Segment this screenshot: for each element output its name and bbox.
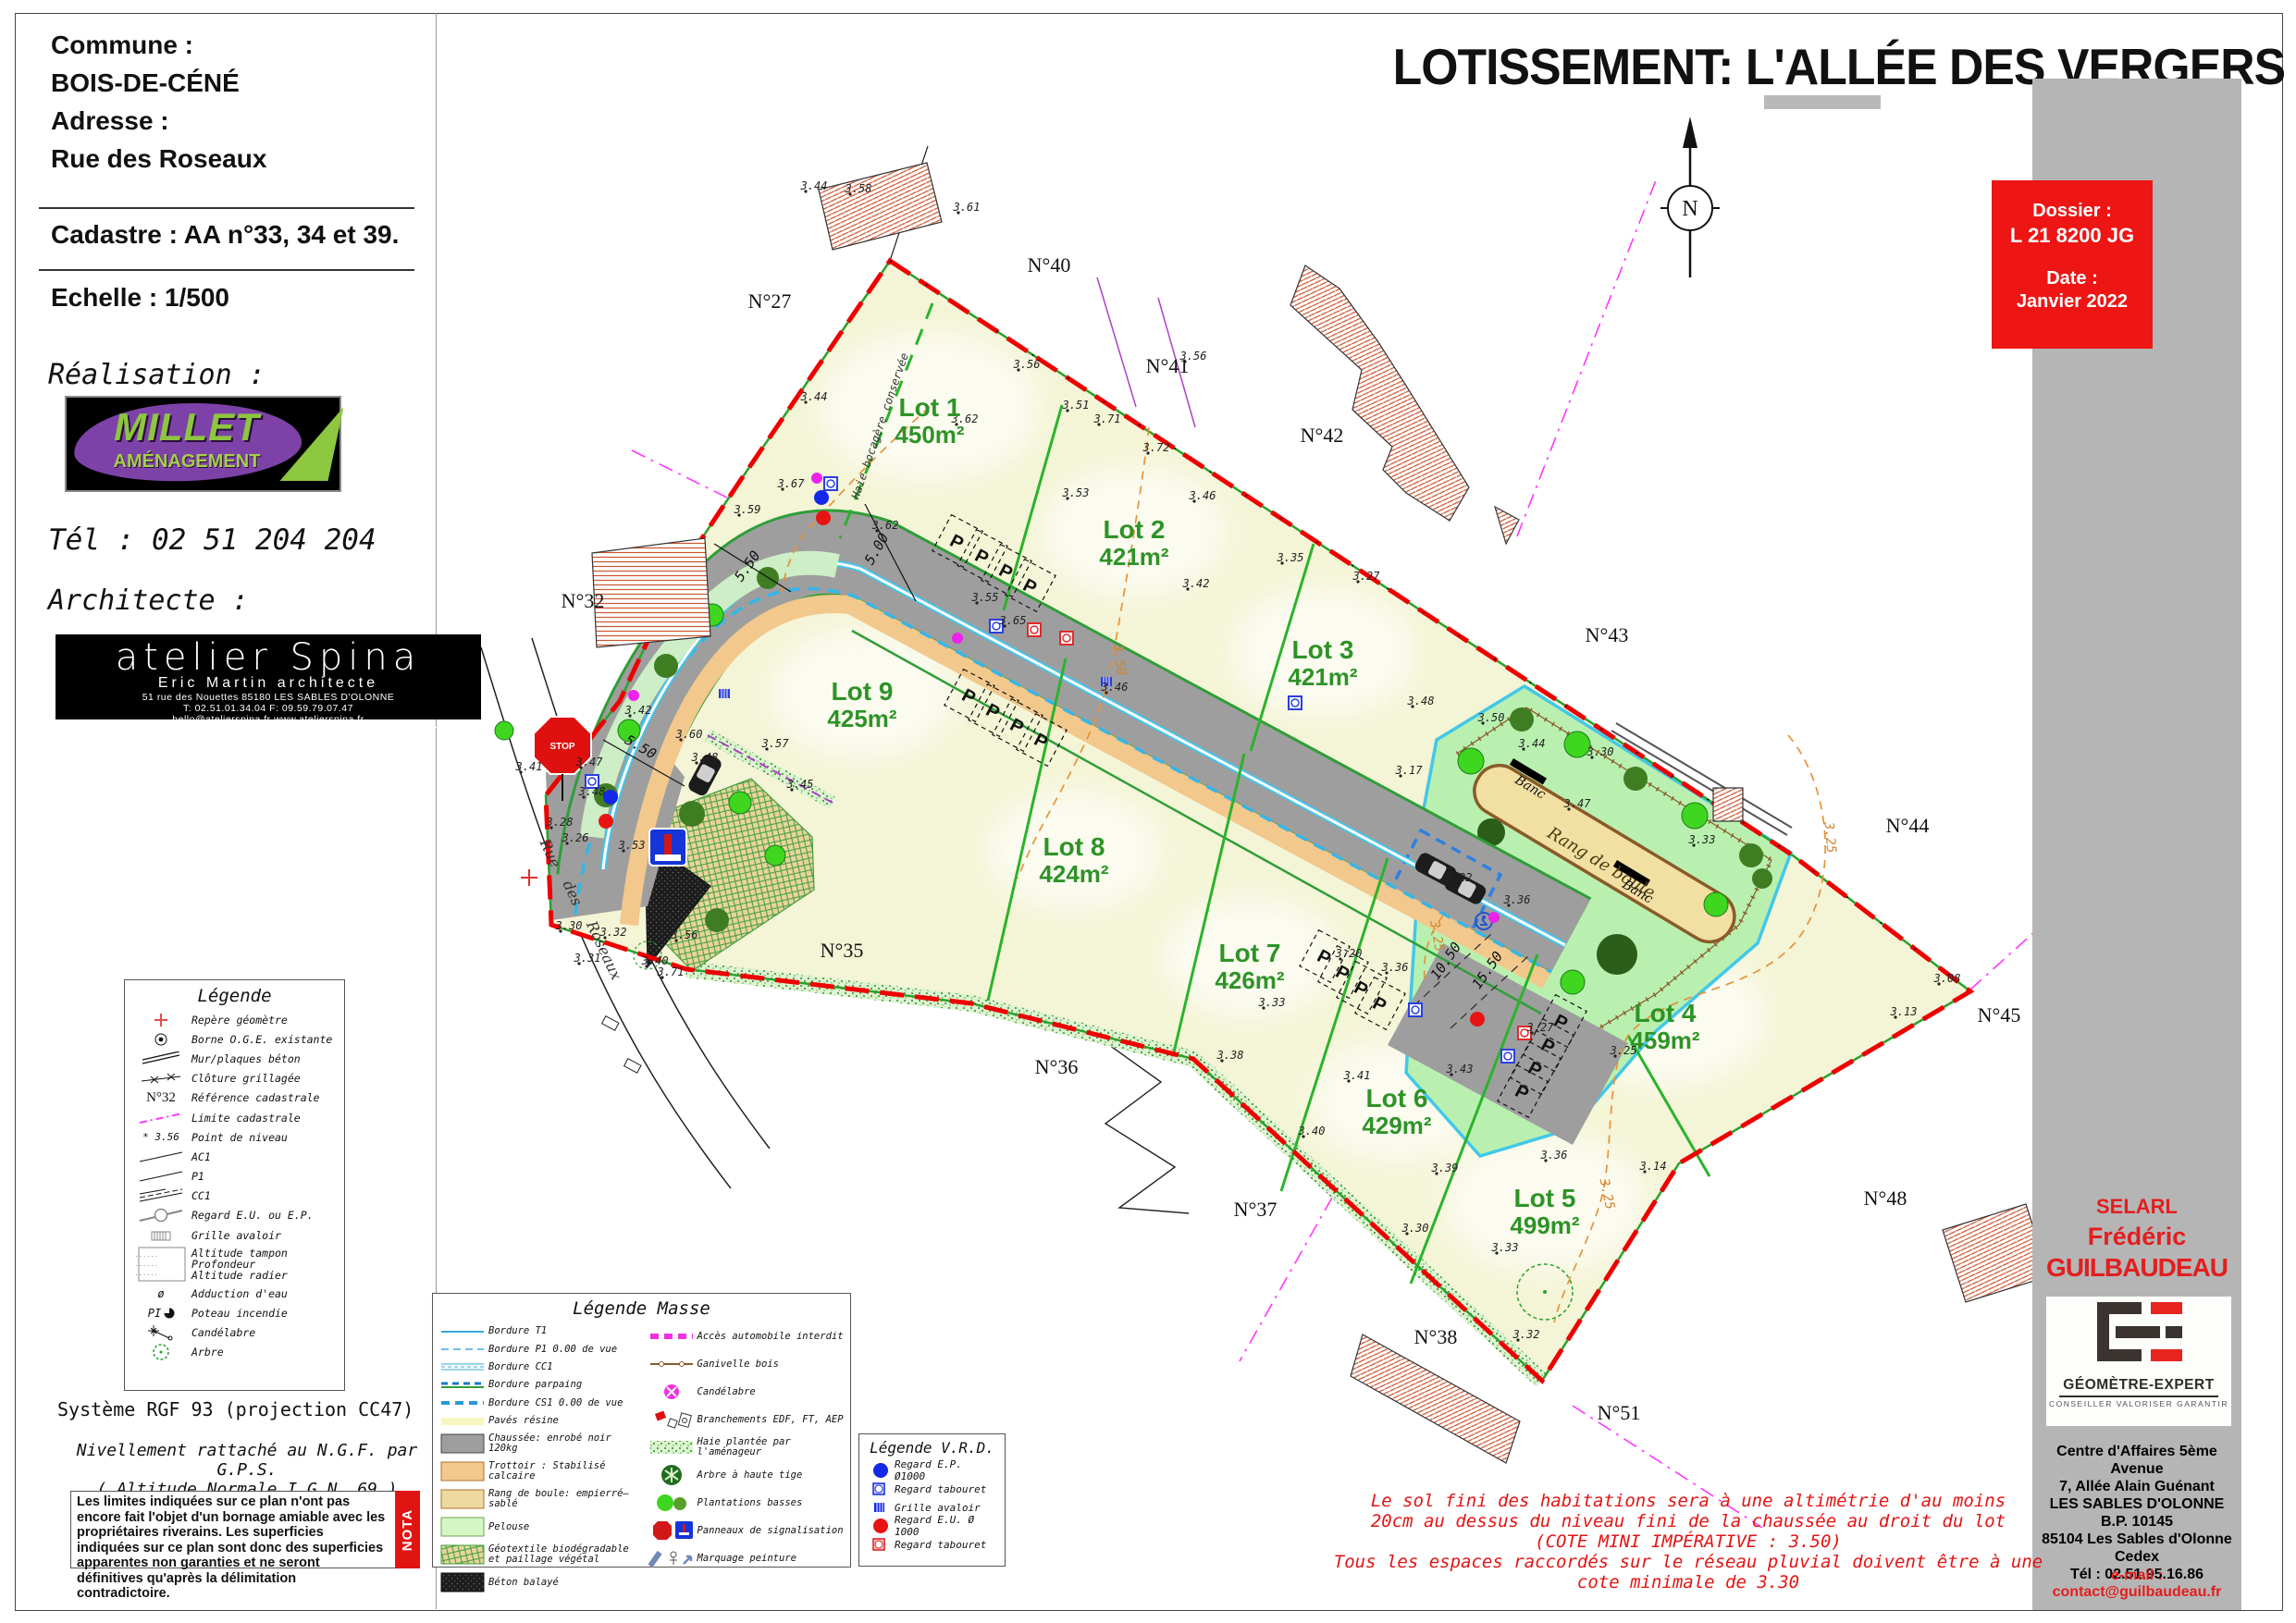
bordure-parpaing-icon — [437, 1381, 488, 1390]
candelabre-masse-icon — [646, 1382, 697, 1402]
arbre-tige-icon — [646, 1463, 697, 1487]
regard-icon — [130, 1207, 191, 1223]
millet-logo-text: MILLET — [67, 405, 307, 449]
altimetry-notes: Le sol fini des habitations sera à une a… — [1332, 1491, 2044, 1592]
geotextile-icon — [437, 1543, 488, 1566]
legend-vrd-box: Légende V.R.D. Regard E.P. Ø1000 Regard … — [858, 1433, 1006, 1567]
spina-email: hello@atelierspina.fr www.atelierspina.f… — [56, 714, 481, 725]
bordure-cs1-icon — [437, 1399, 488, 1407]
marquage-icon — [646, 1547, 697, 1569]
haie-plantee-icon — [646, 1439, 697, 1456]
ac1-icon — [130, 1150, 191, 1163]
millet-logo: MILLET AMÉNAGEMENT — [65, 396, 341, 492]
commune-label: Commune : — [51, 26, 421, 64]
cadastral-limit-icon — [130, 1111, 191, 1125]
legend-vrd-title: Légende V.R.D. — [859, 1439, 1005, 1457]
tpr-icon: T:......P:......R:...... — [130, 1246, 191, 1283]
nota-tag: NOTA — [396, 1491, 420, 1568]
adresse-value: Rue des Roseaux — [51, 140, 421, 178]
ge-logo-subtitle: CONSEILLER VALORISER GARANTIR — [2046, 1399, 2231, 1408]
bordure-t1-icon — [437, 1328, 488, 1335]
tabouret-bleu-icon — [867, 1482, 895, 1496]
tree-icon — [130, 1343, 191, 1361]
nota-box: Les limites indiquées sur ce plan n'ont … — [70, 1491, 396, 1568]
bordure-p1-icon — [437, 1346, 488, 1353]
bordure-cc1-icon — [437, 1362, 488, 1371]
spina-address: 51 rue des Nouettes 85180 LES SABLES D'O… — [56, 692, 481, 703]
realisation-label: Réalisation : — [48, 359, 265, 391]
dossier-number: L 21 8200 JG — [1992, 224, 2153, 248]
ge-logo-title: GÉOMÈTRE-EXPERT — [2059, 1377, 2218, 1397]
echelle: Echelle : 1/500 — [51, 283, 229, 313]
panneaux-icon — [646, 1518, 697, 1543]
dossier-label: Dossier : — [1992, 201, 2153, 222]
selarl-block: SELARL Frédéric GUILBAUDEAU — [2032, 1195, 2241, 1283]
legend-masse-right: Accès automobile interdit Ganivelle bois… — [642, 1322, 851, 1596]
borne-icon — [130, 1032, 191, 1047]
regard-eu-icon — [867, 1518, 895, 1534]
svg-text:T:......: T:...... — [135, 1251, 158, 1259]
dossier-box: Dossier : L 21 8200 JG Date : Janvier 20… — [1992, 180, 2153, 349]
legend-masse-left: Bordure T1 Bordure P1 0.00 de vue Bordur… — [433, 1322, 642, 1596]
fence-icon — [130, 1071, 191, 1086]
rang-boule-icon — [437, 1488, 488, 1510]
geometre-expert-logo: GÉOMÈTRE-EXPERT CONSEILLER VALORISER GAR… — [2046, 1297, 2231, 1426]
cadastre: Cadastre : AA n°33, 34 et 39. — [51, 220, 399, 250]
pelouse-icon — [437, 1516, 488, 1538]
svg-text:P:......: P:...... — [135, 1260, 158, 1268]
realisation-tel: Tél : 02 51 204 204 — [48, 523, 376, 557]
sidebar-address: Centre d'Affaires 5ème Avenue7, Allée Al… — [2032, 1443, 2241, 1583]
divider — [39, 207, 414, 209]
millet-logo-subtext: AMÉNAGEMENT — [67, 451, 307, 473]
tabouret-rouge-icon — [867, 1537, 895, 1552]
geometer-mark-icon — [130, 1013, 191, 1027]
streetlight-icon — [130, 1324, 191, 1341]
spina-name: atelier Spina — [56, 636, 481, 679]
chaussee-icon — [437, 1432, 488, 1455]
date-label: Date : — [1992, 268, 2153, 289]
legend-masse-title: Légende Masse — [433, 1298, 850, 1319]
date-value: Janvier 2022 — [1992, 291, 2153, 313]
atelier-spina-card: atelier Spina Eric Martin architecte 51 … — [56, 634, 481, 719]
legend-title: Légende — [125, 986, 344, 1006]
spina-rule — [63, 727, 474, 728]
cc1-icon — [130, 1188, 191, 1203]
regard-ep-icon — [867, 1462, 895, 1479]
grille-icon — [130, 1229, 191, 1242]
svg-text:PI: PI — [148, 1307, 161, 1320]
plantations-icon — [646, 1493, 697, 1513]
title-underbar — [1764, 95, 1881, 109]
adresse-label: Adresse : — [51, 102, 421, 140]
sheet-border — [15, 13, 2283, 1611]
branchements-icon — [646, 1408, 697, 1431]
ganivelle-icon — [646, 1359, 697, 1369]
cadastral-ref-icon: N°32 — [130, 1090, 191, 1106]
geodesy-system: Système RGF 93 (projection CC47) — [57, 1398, 414, 1420]
hydrant-icon: PI — [130, 1306, 191, 1321]
grille-avaloir-icon — [867, 1501, 895, 1514]
ge-logo-mark — [2046, 1297, 2231, 1369]
trottoir-icon — [437, 1460, 488, 1482]
legend-masse-box: Légende Masse Bordure T1 Bordure P1 0.00… — [432, 1293, 851, 1568]
acces-interdit-icon — [646, 1332, 697, 1341]
commune-value: BOIS-DE-CÉNÉ — [51, 64, 421, 102]
beton-balaye-icon — [437, 1571, 488, 1593]
spina-phone: T: 02.51.01.34.04 F: 09.59.79.07.47 — [56, 703, 481, 714]
p1-icon — [130, 1170, 191, 1183]
svg-text:R:......: R:...... — [135, 1270, 158, 1277]
architecte-label: Architecte : — [48, 584, 249, 617]
wall-icon — [130, 1051, 191, 1066]
legend-box: Légende Repère géomètre Borne O.G.E. exi… — [124, 979, 345, 1391]
divider — [39, 269, 414, 271]
level-point-icon: * 3.56 — [130, 1131, 191, 1143]
paves-resine-icon — [437, 1417, 488, 1426]
sidebar-email: e-mail : contact@guilbaudeau.fr — [2032, 1568, 2241, 1601]
header-block: Commune : BOIS-DE-CÉNÉ Adresse : Rue des… — [51, 26, 421, 178]
water-icon: ø — [130, 1287, 191, 1300]
